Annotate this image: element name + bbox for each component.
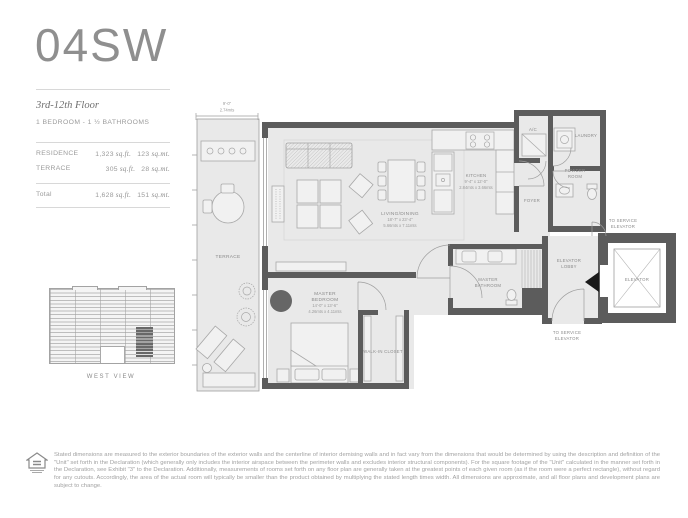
dining-chair (378, 190, 386, 200)
sqmt-unit: sq.mt. (151, 150, 170, 158)
railing-ticks (192, 155, 197, 365)
toilet-bowl-icon (588, 189, 597, 200)
wall (262, 122, 268, 138)
powder-sink (556, 184, 573, 197)
shelf-unit (272, 186, 284, 222)
wall (542, 318, 552, 324)
label-service-top-1: TO SERVICE (609, 218, 637, 223)
floor-range: 3rd-12th Floor (36, 100, 99, 111)
glass-door-lines (264, 290, 267, 378)
terrace-dimension: 9'-0" 2.74mts (196, 101, 258, 120)
kitchen-counter-left (432, 152, 454, 214)
wall (548, 171, 553, 226)
label-foyer: FOYER (524, 198, 540, 203)
elevation-caption: WEST VIEW (49, 374, 173, 380)
label-lobby-2: LOBBY (561, 264, 577, 269)
wall (548, 110, 553, 166)
wall (266, 272, 416, 278)
wall (450, 244, 544, 249)
sqft-value: 305 (106, 166, 118, 173)
label-laundry: LAUNDRY (575, 133, 597, 138)
total-label: Total (36, 191, 52, 199)
building-parapet (72, 286, 98, 290)
sqft-unit: sq.ft. (116, 191, 131, 199)
dimension-ft: 9'-0" (223, 101, 232, 106)
label-living-ft: 18'-7" x 23'-4" (387, 217, 413, 222)
area-values: 305 sq.ft. 28 sq.mt. (106, 165, 170, 173)
area-row-total: Total 1,628 sq.ft. 151 sq.mt. (36, 191, 170, 199)
planter-box (203, 373, 255, 387)
hallway-floor (414, 244, 450, 315)
floor-plan: 9'-0" 2.74mts TERRACE LIVING/DINING 18'-… (185, 88, 685, 448)
dining-chair (417, 176, 425, 186)
glass-door-lines (264, 138, 267, 246)
label-closet: WALK-IN CLOSET (363, 349, 403, 354)
sqmt-value: 151 (137, 192, 149, 199)
divider-line (36, 89, 170, 90)
equal-sign (33, 462, 41, 465)
elevator-door-opening (600, 265, 614, 297)
sqft-value: 1,628 (95, 192, 114, 199)
unit-title: 04SW (35, 22, 168, 68)
sqft-unit: sq.ft. (120, 165, 135, 173)
building-entry (100, 346, 126, 363)
corridor-floor (450, 232, 550, 244)
label-terrace: TERRACE (215, 254, 240, 260)
ottoman (297, 180, 318, 203)
label-kitchen-ft: 9'-4" x 12'-0" (465, 179, 488, 184)
ottoman (320, 205, 341, 228)
sofa (286, 143, 352, 168)
wall (358, 310, 378, 315)
wall (448, 298, 453, 308)
area-row-residence: RESIDENCE 1,323 sq.ft. 123 sq.mt. (36, 150, 170, 158)
sqmt-unit: sq.mt. (151, 165, 170, 173)
label-bathroom-2: BATHROOM (475, 283, 502, 288)
area-values: 1,628 sq.ft. 151 sq.mt. (95, 191, 170, 199)
icon-microtext (30, 471, 44, 473)
equal-housing-icon (26, 452, 48, 474)
sqmt-value: 123 (137, 151, 149, 158)
side-table (203, 364, 212, 373)
area-label: RESIDENCE (36, 150, 78, 158)
dining-chair (378, 162, 386, 172)
ottoman (320, 180, 341, 203)
unit-configuration: 1 BEDROOM - 1 ½ BATHROOMS (36, 119, 149, 126)
wall (514, 110, 606, 116)
label-lobby-1: ELEVATOR (557, 258, 581, 263)
sqmt-unit: sq.mt. (151, 191, 170, 199)
media-console (276, 262, 346, 271)
wall (514, 186, 519, 232)
label-service-bottom-2: ELEVATOR (555, 336, 579, 341)
label-kitchen-m: 2.84mts x 3.66mts (459, 185, 492, 190)
dining-chair (378, 176, 386, 186)
unit-location-highlight (136, 327, 153, 357)
building-elevation (49, 288, 175, 364)
label-powder-2: ROOM (568, 174, 583, 179)
wall (548, 226, 606, 232)
kitchen-counter-right (496, 150, 514, 214)
label-bedroom-ft: 14'-0" x 13'-6" (312, 303, 338, 308)
ottoman (297, 205, 318, 228)
wall (262, 122, 516, 128)
terrace-chair (203, 200, 212, 213)
wall (514, 116, 519, 160)
planter-box (201, 141, 255, 161)
pillow (295, 369, 319, 380)
label-bathroom-1: MASTER (478, 277, 497, 282)
area-label: TERRACE (36, 165, 71, 173)
wall (548, 166, 554, 171)
dining-chair (417, 162, 425, 172)
label-ac: A/C (529, 127, 537, 132)
label-elevator: ELEVATOR (625, 277, 649, 282)
toilet-bowl-icon (507, 290, 516, 301)
building-parapet (118, 286, 147, 290)
dimension-m: 2.74mts (220, 108, 235, 113)
wall (262, 246, 268, 290)
nightstand (277, 369, 289, 382)
terrace-table (212, 191, 244, 223)
dining-chair (417, 190, 425, 200)
pillow (322, 369, 346, 380)
divider-line (36, 207, 170, 208)
area-values: 1,323 sq.ft. 123 sq.mt. (95, 150, 170, 158)
house-outline (27, 453, 47, 468)
divider-line (36, 142, 170, 143)
sqft-value: 1,323 (95, 151, 114, 158)
floorplan-page: 04SW 3rd-12th Floor 1 BEDROOM - 1 ½ BATH… (0, 0, 688, 518)
terrace-chair (221, 184, 234, 193)
wall (262, 378, 268, 389)
divider-line (36, 183, 170, 184)
foyer-floor (514, 116, 550, 232)
label-powder-1: POWDER (565, 168, 586, 173)
label-kitchen: KITCHEN (466, 173, 487, 178)
label-bedroom-m: 4.26mts x 4.11mts (308, 309, 341, 314)
label-service-bottom-1: TO SERVICE (553, 330, 581, 335)
wall (404, 310, 409, 389)
disclaimer-text: Stated dimensions are measured to the ex… (54, 452, 660, 491)
sqmt-value: 28 (141, 166, 149, 173)
wall (448, 308, 548, 315)
round-chair (270, 290, 292, 312)
dining-table (388, 160, 415, 202)
wall (262, 383, 409, 389)
label-bedroom-1: MASTER (314, 291, 336, 297)
area-row-terrace: TERRACE 305 sq.ft. 28 sq.mt. (36, 165, 170, 173)
wall (448, 244, 453, 266)
label-service-top-2: ELEVATOR (611, 224, 635, 229)
sqft-unit: sq.ft. (116, 150, 131, 158)
label-living-m: 5.66mts x 7.11mts (383, 223, 416, 228)
